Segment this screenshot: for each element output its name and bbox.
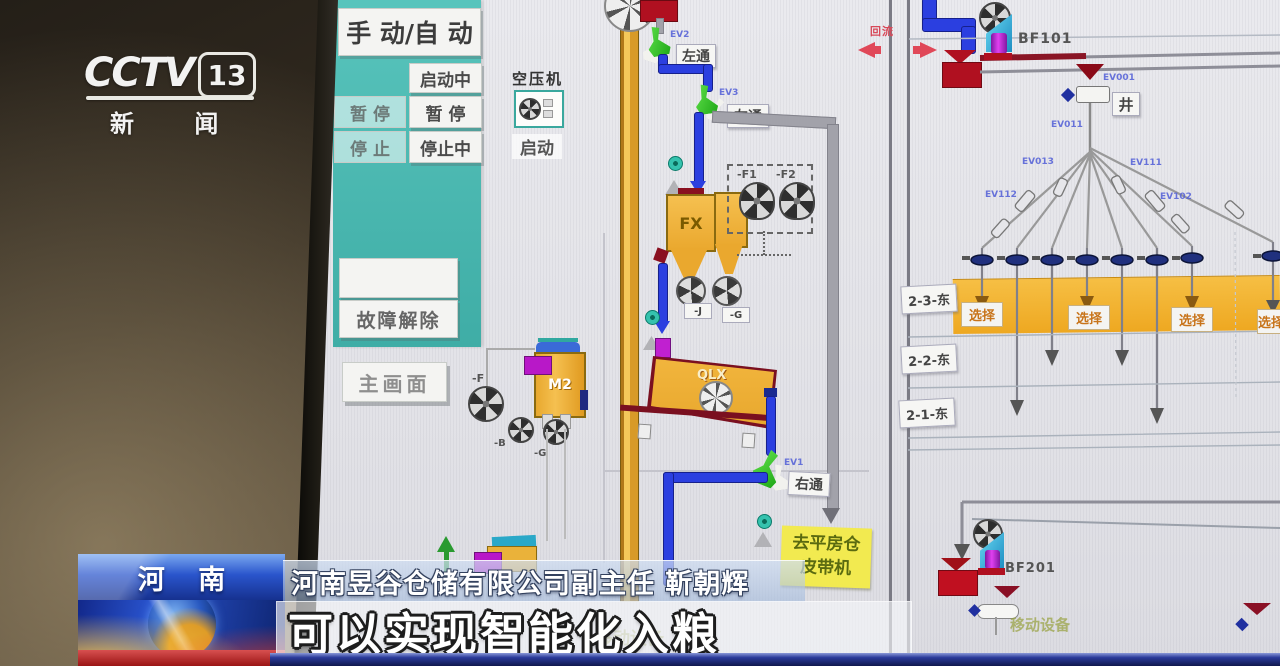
select-button-3[interactable]: 选择 bbox=[1171, 307, 1213, 332]
reflux-arrow-left-icon bbox=[874, 46, 881, 54]
valve-id-tag: EV102 bbox=[1160, 192, 1192, 202]
region-tag-text: 河 南 bbox=[126, 558, 237, 597]
ev1-tag: EV1 bbox=[784, 458, 803, 468]
tv-frame: 手 动/自 动 启动中 暂 停 暂 停 停 止 停止中 故障解除 主画面 空压机… bbox=[0, 0, 1280, 666]
valve-g-label: -G bbox=[722, 307, 750, 323]
starting-button[interactable]: 启动中 bbox=[409, 63, 482, 93]
warning-triangle-icon bbox=[754, 532, 772, 547]
small-funnel bbox=[1243, 603, 1271, 615]
row-label-2-2-east: 2-2-东 bbox=[900, 344, 957, 375]
hopper-box bbox=[938, 570, 978, 596]
stop-left-button[interactable]: 停 止 bbox=[334, 131, 406, 163]
ev3-tag: EV3 bbox=[719, 88, 738, 98]
stand-line bbox=[995, 617, 997, 635]
well-label: 井 bbox=[1112, 92, 1140, 116]
fx-hopper: FX bbox=[666, 194, 716, 252]
bf101-motor bbox=[991, 33, 1007, 54]
pause-right-button[interactable]: 暂 停 bbox=[409, 96, 482, 128]
fan-f1-icon bbox=[739, 182, 775, 220]
mode-button[interactable]: 手 动/自 动 bbox=[338, 8, 481, 56]
fan-g-label: -G bbox=[534, 448, 546, 459]
qlx-inlet bbox=[655, 338, 671, 358]
dashed-duct bbox=[737, 254, 791, 258]
lower-frame-strip bbox=[270, 653, 1280, 666]
bf201-motor bbox=[985, 550, 1000, 569]
bf101-base bbox=[984, 53, 1012, 60]
channel-tagline: 新 闻 bbox=[110, 104, 244, 139]
valve-id-tag: EV112 bbox=[985, 190, 1017, 200]
fault-clear-button[interactable]: 故障解除 bbox=[339, 300, 458, 338]
ev2-tag: EV2 bbox=[670, 30, 689, 40]
reflux-arrow-left-icon bbox=[858, 42, 875, 58]
qlx-foot bbox=[637, 424, 651, 440]
bf201-label: BF201 bbox=[1005, 561, 1056, 576]
channel-logo: CCTV 13 新 闻 bbox=[84, 48, 274, 138]
rotary-valve-icon bbox=[712, 276, 742, 306]
cctv-wordmark: CCTV bbox=[84, 50, 193, 96]
m2-tab bbox=[580, 390, 588, 410]
compressor-indicator bbox=[543, 99, 553, 107]
wire bbox=[487, 348, 535, 350]
rotary-valve-icon bbox=[676, 276, 706, 306]
region-tag: 河 南 bbox=[78, 554, 285, 602]
wire bbox=[564, 429, 566, 539]
compressor-fan-icon bbox=[519, 98, 541, 120]
speaker-bar: 河南昱谷仓储有限公司副主任 靳朝辉 bbox=[283, 560, 805, 602]
valve-j-label: -J bbox=[684, 303, 712, 319]
panel-divider bbox=[889, 0, 892, 666]
valve-id-tag: EV001 bbox=[1103, 73, 1135, 83]
flow-up-arrow bbox=[437, 536, 455, 552]
pipe-segment bbox=[827, 124, 839, 510]
fan-b-icon bbox=[508, 417, 534, 443]
wire bbox=[486, 348, 488, 388]
speaker-name-text: 河南昱谷仓储有限公司副主任 靳朝辉 bbox=[283, 562, 749, 601]
m2-feeder bbox=[524, 356, 552, 375]
compressor-indicator bbox=[543, 110, 553, 118]
reflux-label: 回流 bbox=[870, 23, 894, 39]
row-label-2-1-east: 2-1-东 bbox=[898, 398, 955, 429]
select-button-2[interactable]: 选择 bbox=[1068, 305, 1110, 330]
fan-f-label: -F bbox=[472, 372, 484, 385]
compressor-label: 空压机 bbox=[512, 68, 563, 89]
compressor-start-label: 启动 bbox=[512, 134, 562, 159]
sensor-icon bbox=[668, 156, 683, 171]
pipe-arrow bbox=[822, 508, 840, 524]
valve-id-tag: EV013 bbox=[1022, 157, 1054, 167]
elevator-pipe bbox=[620, 8, 639, 602]
pipe-segment bbox=[766, 396, 776, 456]
row-label-2-3-east: 2-3-东 bbox=[900, 284, 957, 315]
fx-outlet bbox=[653, 247, 669, 263]
valve-id-tag: EV111 bbox=[1130, 158, 1162, 168]
distributor-funnel bbox=[1076, 64, 1104, 80]
dashed-duct bbox=[763, 231, 767, 255]
channel-number-badge: 13 bbox=[198, 52, 256, 98]
main-screen-button[interactable]: 主画面 bbox=[342, 362, 447, 402]
wire bbox=[546, 429, 548, 541]
fx-funnel-right bbox=[715, 244, 743, 274]
select-button-4[interactable]: 选择 bbox=[1257, 309, 1280, 334]
pipe-segment bbox=[663, 472, 768, 483]
compressor-button[interactable] bbox=[514, 90, 564, 128]
pipe-segment bbox=[694, 112, 704, 184]
pause-left-button[interactable]: 暂 停 bbox=[334, 96, 406, 128]
faint-equipment-label: 移动设备 bbox=[1010, 614, 1070, 635]
stopping-button[interactable]: 停止中 bbox=[409, 131, 482, 163]
empty-field[interactable] bbox=[339, 258, 458, 298]
distributor-box bbox=[1076, 86, 1110, 103]
ticker-red-strip bbox=[78, 650, 285, 666]
sensor-icon bbox=[645, 310, 660, 325]
bf101-label: BF101 bbox=[1018, 31, 1072, 47]
fx-funnel bbox=[670, 248, 708, 278]
fan-b-label: -B bbox=[494, 438, 506, 449]
frame-line bbox=[603, 233, 605, 563]
right-pass-label: 右通 bbox=[787, 471, 830, 497]
destination-line2: 皮带机 bbox=[800, 556, 852, 582]
fan-f2-icon bbox=[779, 182, 815, 220]
logo-underline bbox=[86, 96, 254, 100]
caption-bar: 可以实现智能化入粮 bbox=[276, 601, 912, 659]
globe-swirl bbox=[78, 600, 285, 650]
fan-f-icon bbox=[468, 386, 504, 422]
fan-f2-label: -F2 bbox=[776, 168, 796, 181]
bf201-base bbox=[978, 568, 1005, 575]
qlx-foot bbox=[741, 433, 755, 449]
valve-id-tag: EV011 bbox=[1051, 120, 1083, 130]
fan-f1-label: -F1 bbox=[737, 168, 757, 181]
destination-line1: 去平房仓 bbox=[792, 532, 861, 558]
select-button-1[interactable]: 选择 bbox=[961, 302, 1003, 327]
small-funnel bbox=[994, 586, 1020, 598]
sensor-icon bbox=[757, 514, 772, 529]
network-globe-logo bbox=[78, 600, 285, 650]
